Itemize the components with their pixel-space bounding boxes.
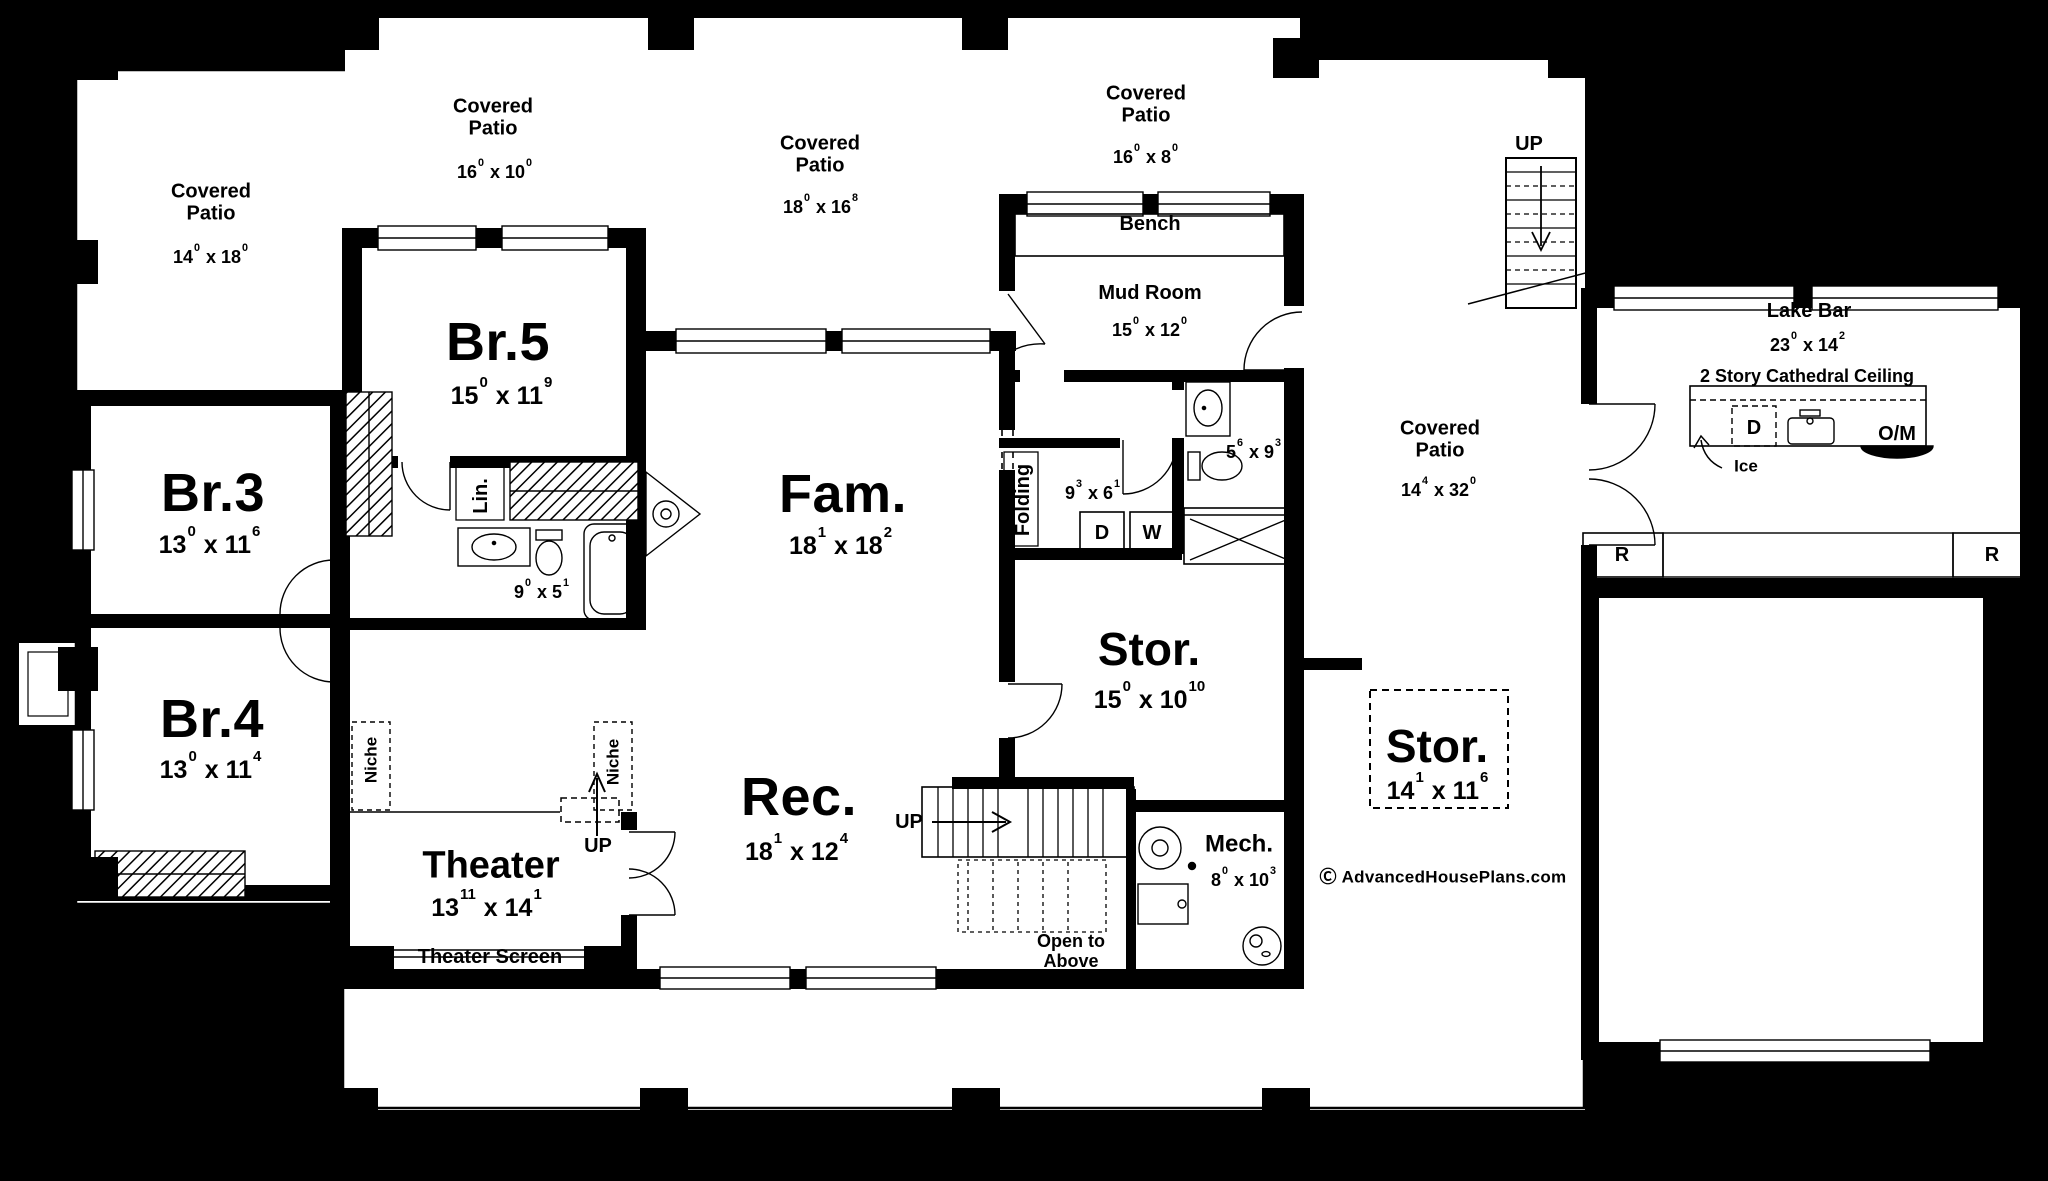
- patio-right-label: Covered Patio: [1380, 418, 1500, 463]
- open-to-above-label: Open to Above: [1016, 931, 1126, 971]
- floorplan-linework: [0, 0, 2048, 1181]
- room-label-br5: Br.5: [446, 312, 550, 372]
- patio-t2-dimensions: 180 x 168: [783, 197, 859, 217]
- bath1-dimensions: 90 x 51: [514, 582, 570, 602]
- washer-label: W: [1143, 522, 1162, 544]
- bench-label: Bench: [1119, 213, 1180, 235]
- patio-right-dimensions: 144 x 320: [1401, 480, 1477, 500]
- patio-t2-label: Covered Patio: [760, 133, 880, 178]
- laundry-dimensions: 93 x 61: [1065, 483, 1121, 503]
- bar-dishwasher-label: D: [1747, 417, 1761, 439]
- up-label-upper-stairs: UP: [1515, 133, 1543, 155]
- copyright-symbol-icon: Ⓒ: [1320, 867, 1337, 886]
- ice-maker-label: Ice: [1734, 456, 1758, 475]
- room-label-br3: Br.3: [161, 463, 265, 523]
- linen-closet-label: Lin.: [470, 478, 492, 514]
- room-label-fam: Fam.: [779, 464, 907, 524]
- mud-dimensions: 150 x 120: [1112, 320, 1188, 340]
- patio-t3-dimensions: 160 x 80: [1113, 147, 1179, 167]
- room-label-br4: Br.4: [160, 689, 264, 749]
- up-label-theater: UP: [584, 835, 612, 857]
- theater-dimensions: 1311 x 141: [431, 894, 543, 922]
- br3-dimensions: 130 x 116: [159, 531, 262, 559]
- niche-right-label: Niche: [603, 739, 622, 785]
- mech-dimensions: 80 x 103: [1211, 870, 1277, 890]
- floor-plan-canvas: Covered Patio 140 x 180 Covered Patio 16…: [0, 0, 2048, 1181]
- room-label-mud: Mud Room: [1098, 282, 1201, 304]
- lakebar-dimensions: 230 x 142: [1770, 335, 1846, 355]
- rec-dimensions: 181 x 124: [745, 838, 849, 866]
- copyright-notice: Ⓒ AdvancedHousePlans.com: [1320, 867, 1567, 886]
- up-label-main-stairs: UP: [895, 811, 923, 833]
- patio-t1-dimensions: 160 x 100: [457, 162, 533, 182]
- room-label-lakebar: Lake Bar: [1767, 300, 1852, 322]
- theater-screen-label: Theater Screen: [418, 946, 563, 968]
- fam-dimensions: 181 x 182: [789, 532, 893, 560]
- stor1-dimensions: 150 x 1010: [1094, 686, 1206, 714]
- cathedral-ceiling-note: 2 Story Cathedral Ceiling: [1700, 366, 1914, 386]
- stor2-dimensions: 141 x 116: [1387, 777, 1490, 805]
- patio-t3-label: Covered Patio: [1086, 83, 1206, 128]
- oven-microwave-label: O/M: [1878, 423, 1916, 445]
- br4-dimensions: 130 x 114: [160, 756, 263, 784]
- fridge-right-label: R: [1985, 544, 1999, 566]
- patio-tl-dimensions: 140 x 180: [173, 247, 249, 267]
- room-label-mech: Mech.: [1205, 832, 1273, 859]
- patio-tl-label: Covered Patio: [151, 181, 271, 226]
- br5-dimensions: 150 x 119: [451, 382, 554, 410]
- dryer-label: D: [1095, 522, 1109, 544]
- folding-counter-label: Folding: [1012, 464, 1034, 536]
- bath2-dimensions: 56 x 93: [1226, 442, 1282, 462]
- niche-left-label: Niche: [361, 737, 380, 783]
- fridge-left-label: R: [1615, 544, 1629, 566]
- room-label-stor1: Stor.: [1098, 624, 1200, 676]
- room-label-theater: Theater: [422, 845, 559, 888]
- patio-t1-label: Covered Patio: [433, 96, 553, 141]
- room-label-rec: Rec.: [741, 767, 857, 827]
- room-label-stor2: Stor.: [1386, 721, 1488, 773]
